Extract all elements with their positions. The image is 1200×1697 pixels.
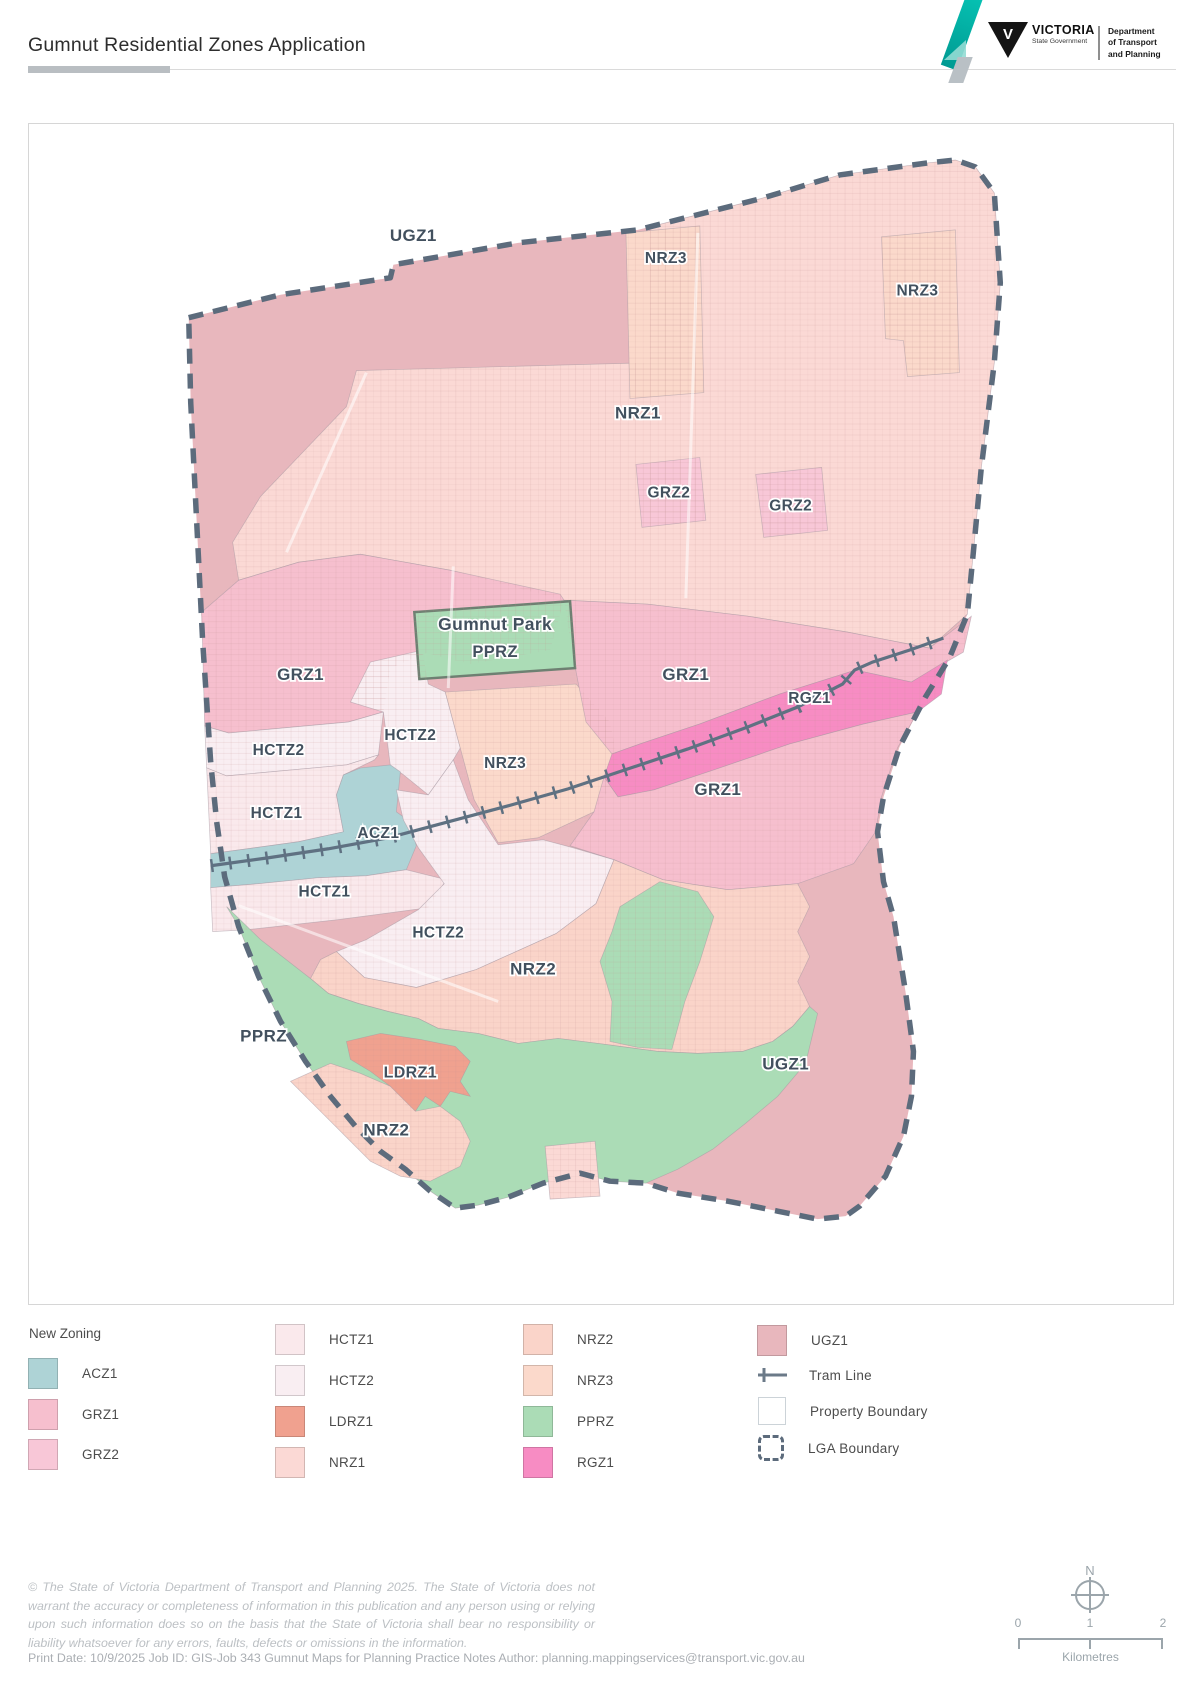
legend-item-NRZ3: NRZ3 — [523, 1365, 613, 1396]
zone-label: LDRZ1 — [384, 1064, 437, 1081]
victoria-wordmark: VICTORIA State Government — [1032, 24, 1095, 45]
print-info: Print Date: 10/9/2025 Job ID: GIS-Job 34… — [28, 1651, 805, 1665]
legend-swatch-NRZ3-icon — [523, 1365, 553, 1396]
zone-label: HCTZ1 — [299, 884, 351, 901]
legend-swatch-NRZ1-icon — [275, 1447, 305, 1478]
legend-swatch-GRZ1-icon — [28, 1399, 58, 1430]
zone-label: NRZ3 — [484, 755, 526, 772]
zone-label: HCTZ2 — [253, 742, 305, 759]
legend-item-tram-line: Tram Line — [755, 1366, 872, 1384]
lga-boundary-icon — [758, 1435, 784, 1461]
logo-divider — [1098, 26, 1100, 60]
legend-swatch-UGZ1-icon — [757, 1325, 787, 1356]
victoria-emblem-icon: V — [988, 22, 1028, 58]
zone-label: PPRZ — [472, 643, 518, 661]
legend-swatch-RGZ1-icon — [523, 1447, 553, 1478]
scale-bar: 0 1 2 Kilometres — [1008, 1616, 1173, 1664]
legend-item-UGZ1: UGZ1 — [757, 1325, 848, 1356]
zone-label: HCTZ2 — [412, 925, 464, 942]
scale-bar-tick — [1161, 1640, 1163, 1649]
legend-item-NRZ2: NRZ2 — [523, 1324, 613, 1355]
zone-label: GRZ2 — [647, 484, 690, 501]
legend-item-ACZ1: ACZ1 — [28, 1358, 118, 1389]
page: Gumnut Residential Zones Application V V… — [0, 0, 1200, 1697]
zone-label: GRZ2 — [769, 497, 812, 514]
legend-swatch-HCTZ2-icon — [275, 1365, 305, 1396]
zone-label: HCTZ2 — [384, 727, 436, 744]
legend-item-LDRZ1: LDRZ1 — [275, 1406, 373, 1437]
scale-tick-label: 0 — [1008, 1616, 1028, 1630]
zone-label: Gumnut Park — [438, 614, 552, 634]
tram-line-icon — [755, 1366, 789, 1384]
zoning-map: UGZ1NRZ3NRZ3NRZ1GRZ2GRZ2Gumnut ParkPPRZG… — [29, 124, 1173, 1304]
zone-label: UGZ1 — [390, 226, 437, 245]
zone-label: GRZ1 — [694, 780, 741, 799]
legend-swatch-GRZ2-icon — [28, 1439, 58, 1470]
disclaimer-text: © The State of Victoria Department of Tr… — [28, 1578, 595, 1652]
header-divider-accent — [28, 66, 170, 73]
legend-swatch-ACZ1-icon — [28, 1358, 58, 1389]
zone-label: GRZ1 — [662, 665, 709, 684]
scale-tick-label: 1 — [1080, 1616, 1100, 1630]
map-frame: UGZ1NRZ3NRZ3NRZ1GRZ2GRZ2Gumnut ParkPPRZG… — [28, 123, 1174, 1305]
scale-bar-line — [1018, 1638, 1163, 1649]
legend-item-GRZ1: GRZ1 — [28, 1399, 119, 1430]
zone-label: NRZ2 — [363, 1120, 409, 1139]
page-title: Gumnut Residential Zones Application — [28, 34, 366, 57]
legend-item-PPRZ: PPRZ — [523, 1406, 614, 1437]
legend-swatch-LDRZ1-icon — [275, 1406, 305, 1437]
legend-item-HCTZ2: HCTZ2 — [275, 1365, 374, 1396]
legend-swatch-PPRZ-icon — [523, 1406, 553, 1437]
zone-label: HCTZ1 — [251, 805, 303, 822]
zone-label: UGZ1 — [762, 1054, 809, 1073]
zone-label: ACZ1 — [357, 825, 399, 842]
legend-item-GRZ2: GRZ2 — [28, 1439, 119, 1470]
svg-text:N: N — [1085, 1563, 1094, 1578]
scale-unit: Kilometres — [1008, 1650, 1173, 1664]
legend-item-RGZ1: RGZ1 — [523, 1447, 614, 1478]
zone-label: GRZ1 — [277, 665, 324, 684]
scale-tick-label: 2 — [1153, 1616, 1173, 1630]
zone-label: NRZ3 — [645, 250, 687, 267]
legend-swatch-NRZ2-icon — [523, 1324, 553, 1355]
north-arrow-icon: N — [1068, 1562, 1112, 1616]
victoria-logo: V VICTORIA State Government Department o… — [940, 0, 1176, 86]
property-boundary-icon — [758, 1397, 786, 1425]
legend-item-NRZ1: NRZ1 — [275, 1447, 365, 1478]
scale-bar-tick — [1089, 1640, 1091, 1649]
brand-name: VICTORIA — [1032, 24, 1095, 37]
zone-label: NRZ3 — [896, 283, 938, 300]
brand-subtitle: State Government — [1032, 39, 1095, 46]
department-name: Department of Transport and Planning — [1108, 26, 1161, 60]
zone-label: NRZ2 — [510, 960, 556, 979]
legend-swatch-HCTZ1-icon — [275, 1324, 305, 1355]
zone-label: RGZ1 — [788, 690, 831, 707]
legend-item-HCTZ1: HCTZ1 — [275, 1324, 374, 1355]
zone-label: NRZ1 — [615, 404, 661, 423]
legend-item-lga-boundary: LGA Boundary — [758, 1435, 899, 1461]
legend-title: New Zoning — [29, 1326, 101, 1341]
legend-item-property-boundary: Property Boundary — [758, 1397, 928, 1425]
parcel-texture-overlay — [545, 1141, 600, 1199]
zone-label: PPRZ — [240, 1026, 287, 1045]
scale-bar-tick — [1018, 1640, 1020, 1649]
